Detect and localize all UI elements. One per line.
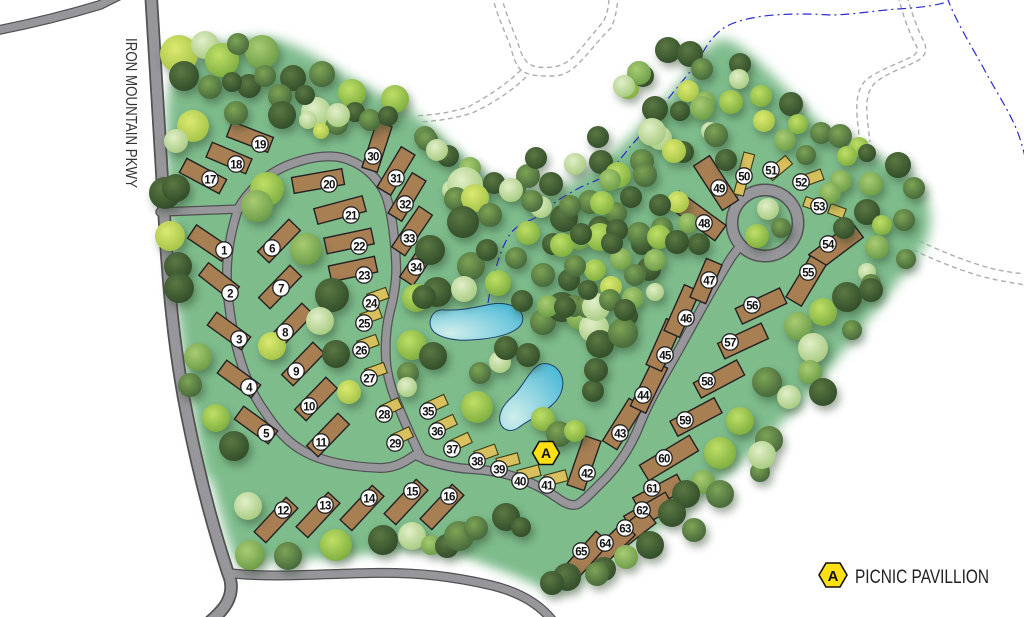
svg-text:50: 50: [738, 171, 750, 183]
svg-text:48: 48: [698, 218, 711, 230]
svg-text:31: 31: [390, 173, 403, 185]
svg-text:17: 17: [204, 174, 216, 186]
svg-text:26: 26: [355, 345, 367, 357]
svg-text:62: 62: [636, 505, 648, 517]
svg-text:24: 24: [365, 298, 378, 310]
svg-text:3: 3: [236, 334, 242, 346]
svg-text:21: 21: [345, 210, 358, 222]
svg-text:14: 14: [363, 493, 376, 505]
svg-text:18: 18: [230, 159, 243, 171]
svg-text:25: 25: [358, 318, 371, 330]
svg-text:55: 55: [802, 267, 815, 279]
svg-text:22: 22: [353, 241, 365, 253]
svg-text:46: 46: [680, 313, 692, 325]
svg-text:60: 60: [658, 453, 670, 465]
svg-text:30: 30: [367, 151, 379, 163]
svg-text:32: 32: [399, 199, 411, 211]
svg-text:34: 34: [410, 262, 423, 274]
svg-text:15: 15: [406, 486, 419, 498]
svg-text:16: 16: [443, 491, 455, 503]
svg-text:52: 52: [795, 177, 807, 189]
svg-text:44: 44: [637, 390, 650, 402]
svg-text:29: 29: [389, 438, 401, 450]
svg-text:56: 56: [746, 300, 758, 312]
svg-text:38: 38: [471, 456, 484, 468]
svg-text:40: 40: [514, 476, 526, 488]
svg-text:20: 20: [323, 179, 335, 191]
svg-text:2: 2: [227, 288, 233, 300]
svg-text:51: 51: [765, 165, 778, 177]
svg-text:36: 36: [431, 426, 443, 438]
svg-text:35: 35: [422, 406, 435, 418]
svg-text:6: 6: [269, 243, 275, 255]
svg-text:57: 57: [724, 337, 736, 349]
svg-text:54: 54: [822, 239, 835, 251]
svg-text:61: 61: [646, 483, 659, 495]
svg-text:7: 7: [278, 283, 284, 295]
svg-text:47: 47: [703, 275, 715, 287]
svg-text:A: A: [828, 568, 839, 585]
svg-text:10: 10: [303, 401, 315, 413]
svg-text:63: 63: [619, 523, 631, 535]
svg-text:11: 11: [316, 437, 328, 449]
svg-text:45: 45: [659, 350, 672, 362]
svg-text:A: A: [541, 445, 551, 461]
svg-text:58: 58: [701, 376, 714, 388]
svg-text:41: 41: [541, 480, 554, 492]
svg-text:9: 9: [293, 366, 299, 378]
svg-text:53: 53: [813, 201, 825, 213]
svg-text:65: 65: [575, 546, 588, 558]
svg-text:37: 37: [446, 444, 458, 456]
svg-text:12: 12: [277, 505, 289, 517]
svg-text:49: 49: [713, 183, 725, 195]
svg-text:PICNIC PAVILLION: PICNIC PAVILLION: [855, 566, 989, 588]
svg-text:28: 28: [378, 409, 391, 421]
svg-text:59: 59: [679, 415, 691, 427]
svg-text:43: 43: [614, 428, 626, 440]
svg-text:33: 33: [403, 233, 415, 245]
svg-text:39: 39: [493, 464, 505, 476]
svg-text:13: 13: [319, 500, 331, 512]
svg-text:IRON MOUNTAIN PKWY: IRON MOUNTAIN PKWY: [122, 38, 139, 188]
svg-text:19: 19: [254, 139, 266, 151]
svg-text:23: 23: [358, 270, 370, 282]
svg-text:27: 27: [363, 373, 375, 385]
svg-text:64: 64: [599, 538, 612, 550]
svg-text:42: 42: [581, 468, 593, 480]
